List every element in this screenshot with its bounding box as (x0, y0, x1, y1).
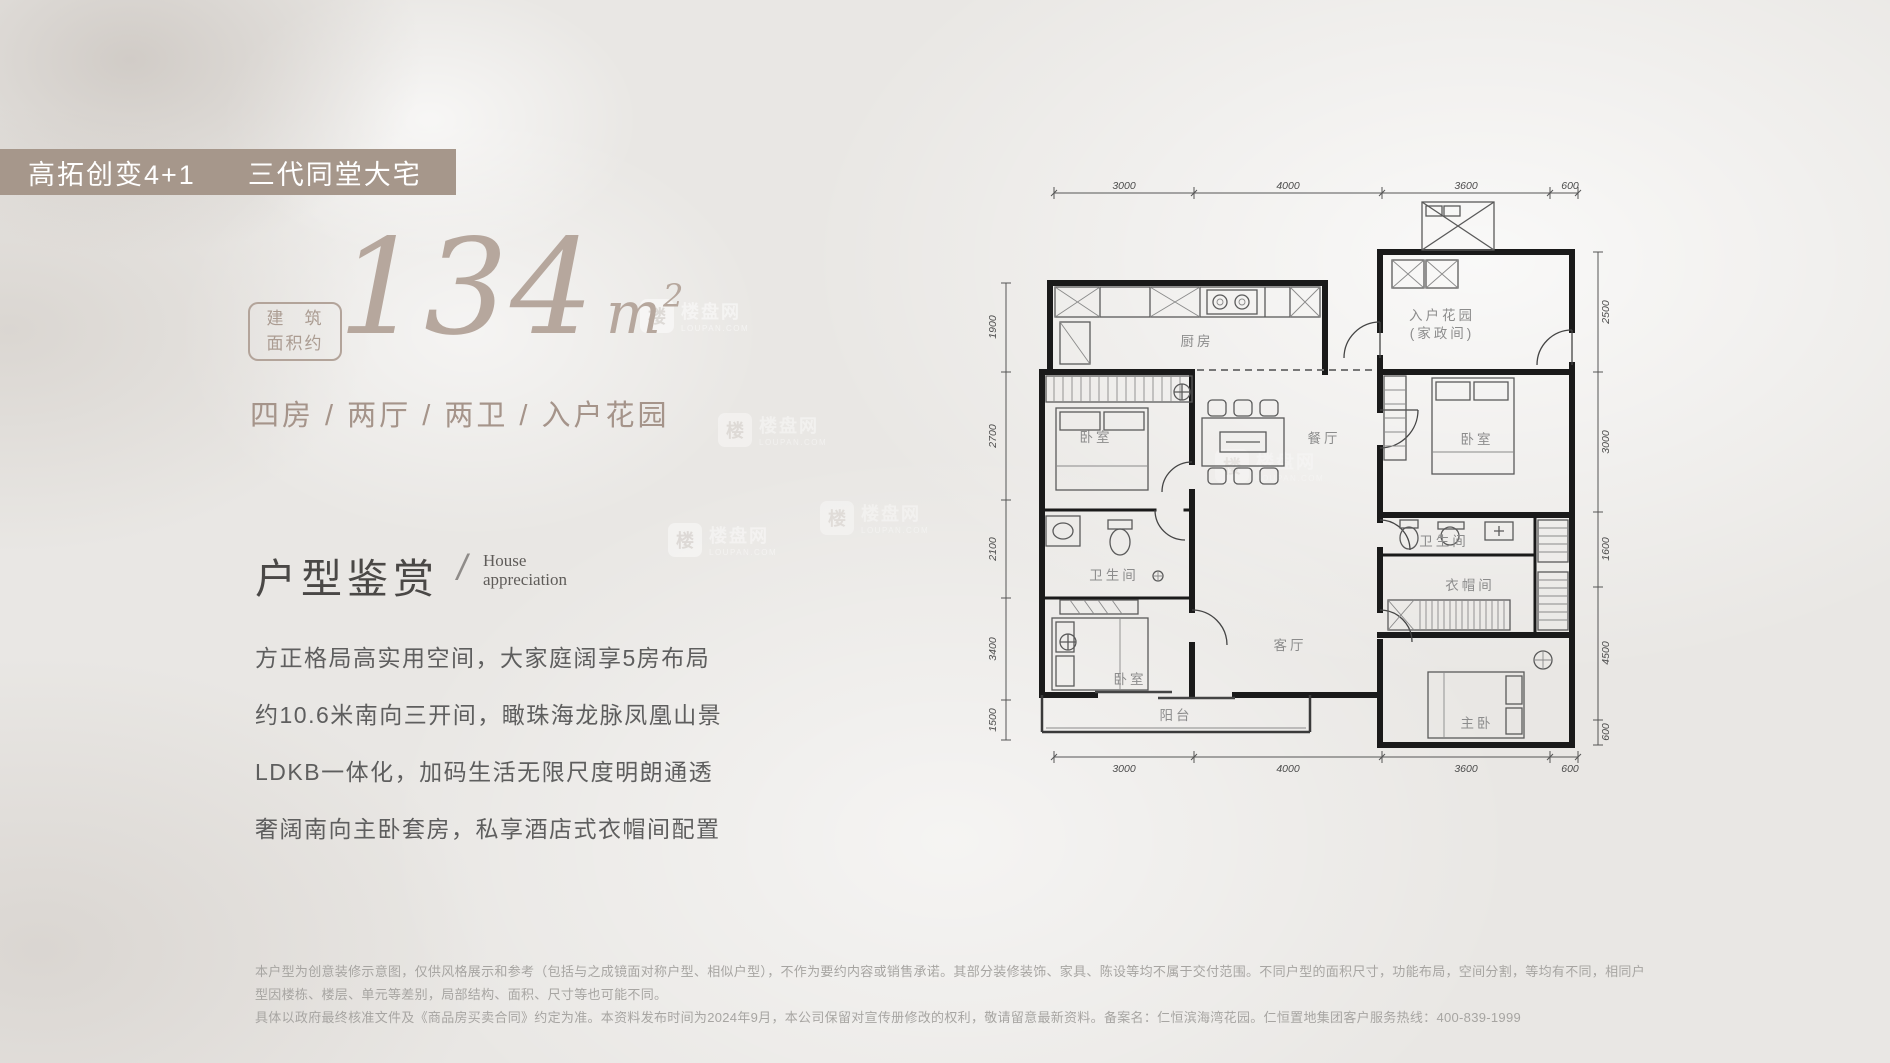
dim-label: 2500 (1600, 300, 1612, 325)
area-figure: 134m2 (338, 222, 681, 354)
section-divider: / (457, 547, 467, 589)
dim-label: 2100 (987, 537, 999, 562)
watermark-logo-icon: 楼 (718, 413, 752, 447)
floorplan: 3000 4000 3600 600 3000 4000 3600 600 (980, 180, 1630, 780)
section-title-cn: 户型鉴赏 (255, 545, 439, 605)
built-area-label-line2: 面积约 (250, 331, 340, 356)
room-label-entry-garden-sub: (家政间) (1410, 325, 1475, 341)
description-line: 奢阔南向主卧套房，私享酒店式衣帽间配置 (255, 801, 722, 858)
disclaimer: 本户型为创意装修示意图，仅供风格展示和参考（包括与之成镜面对称户型、相似户型），… (255, 960, 1655, 1029)
dim-label: 600 (1561, 763, 1579, 775)
dim-label: 1900 (987, 315, 999, 339)
layout-tagline: 四房 / 两厅 / 两卫 / 入户花园 (250, 392, 670, 434)
dim-label: 600 (1561, 180, 1579, 192)
watermark-logo-icon: 楼 (820, 501, 854, 535)
room-label-living: 客厅 (1274, 637, 1307, 653)
bedroom-right-furniture (1384, 376, 1514, 474)
dim-right: 2500 3000 1600 4500 600 (1593, 252, 1612, 745)
built-area-label-box: 建 筑 面积约 (248, 302, 342, 361)
shaft-top (1422, 202, 1494, 250)
disclaimer-line: 本户型为创意装修示意图，仅供风格展示和参考（包括与之成镜面对称户型、相似户型），… (255, 960, 1655, 1006)
dim-left: 1900 2700 2100 3400 1500 (987, 283, 1011, 740)
dim-label: 4500 (1600, 641, 1612, 665)
description-line: LDKB一体化，加码生活无限尺度明朗通透 (255, 744, 722, 801)
room-label-bedroom: 卧室 (1080, 429, 1113, 445)
kitchen-fixtures (1055, 287, 1320, 364)
dim-bottom: 3000 4000 3600 600 (1051, 751, 1581, 775)
dim-label: 3600 (1454, 763, 1478, 775)
area-unit-exponent: 2 (663, 277, 683, 315)
section-title-en: House appreciation (483, 545, 567, 589)
dim-label: 3600 (1454, 180, 1478, 192)
disclaimer-line: 具体以政府最终核准文件及《商品房买卖合同》约定为准。本资料发布时间为2024年9… (255, 1006, 1655, 1029)
dim-label: 1600 (1600, 537, 1612, 561)
room-label-kitchen: 厨房 (1181, 334, 1214, 349)
description-line: 方正格局高实用空间，大家庭阔享5房布局 (255, 630, 722, 687)
dim-label: 3400 (987, 637, 999, 661)
room-label-bath: 卫生间 (1089, 568, 1139, 583)
dim-label: 2700 (987, 424, 999, 449)
room-label-entry-garden: 入户花园 (1409, 307, 1475, 323)
watermark-logo-icon: 楼 (668, 523, 702, 557)
room-label-dining: 餐厅 (1308, 431, 1341, 446)
watermark: 楼 楼盘网LOUPAN.COM (668, 522, 777, 557)
floorplan-svg: 3000 4000 3600 600 3000 4000 3600 600 (980, 180, 1630, 780)
dim-label: 600 (1600, 723, 1612, 741)
cloakroom-rack (1388, 600, 1510, 630)
watermark: 楼 楼盘网LOUPAN.COM (820, 500, 929, 535)
area-value: 134 (338, 211, 596, 365)
bedroom-left-furniture (1046, 376, 1192, 490)
room-label-cloakroom: 衣帽间 (1445, 578, 1495, 593)
banner-text-right: 三代同堂大宅 (248, 153, 422, 192)
banner: 高拓创变4+1 三代同堂大宅 (0, 149, 456, 195)
room-label-bedroom: 卧室 (1114, 671, 1147, 687)
dim-label: 4000 (1276, 180, 1300, 192)
dim-label: 3000 (1112, 180, 1136, 192)
dim-label: 4000 (1276, 763, 1300, 775)
built-area-label-line1: 建 筑 (250, 306, 340, 331)
dim-label: 1500 (987, 708, 999, 732)
banner-text-left: 高拓创变4+1 (28, 153, 196, 192)
section-heading: 户型鉴赏 / House appreciation (255, 545, 567, 605)
dim-label: 3000 (1112, 763, 1136, 775)
room-label-bedroom: 卧室 (1461, 431, 1494, 447)
dining-table (1202, 400, 1284, 484)
room-label-master: 主卧 (1461, 716, 1494, 731)
description-line: 约10.6米南向三开间，瞰珠海龙脉凤凰山景 (255, 687, 722, 744)
description: 方正格局高实用空间，大家庭阔享5房布局 约10.6米南向三开间，瞰珠海龙脉凤凰山… (255, 630, 722, 858)
poster-page: 高拓创变4+1 三代同堂大宅 建 筑 面积约 134m2 四房 / 两厅 / 两… (0, 0, 1890, 1063)
room-label-bath: 卫生间 (1419, 534, 1469, 549)
watermark: 楼 楼盘网LOUPAN.COM (718, 412, 827, 447)
area-unit: m2 (606, 279, 681, 347)
room-label-balcony: 阳台 (1160, 708, 1193, 723)
entry-garden-fixtures (1392, 260, 1458, 288)
dim-label: 3000 (1600, 430, 1612, 454)
service-shaft (1538, 520, 1568, 630)
dim-top: 3000 4000 3600 600 (1051, 180, 1581, 199)
